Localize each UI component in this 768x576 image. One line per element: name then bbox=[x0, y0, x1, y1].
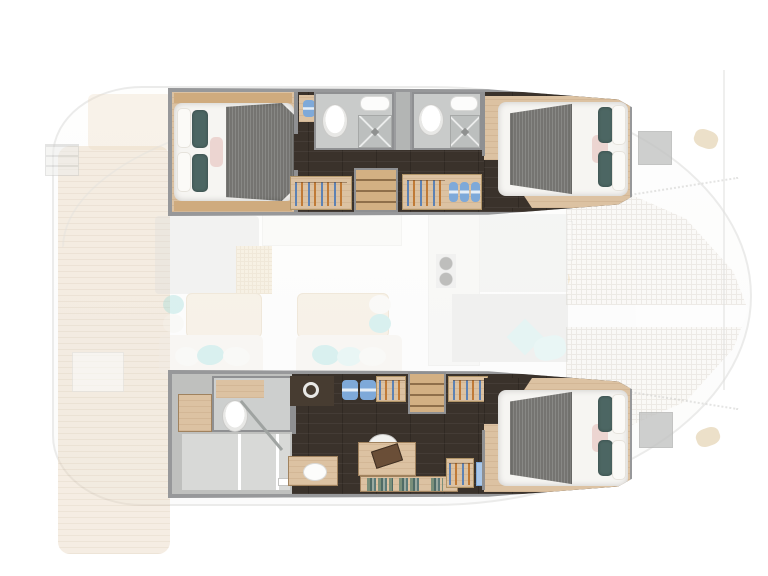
bed-blanket-gray bbox=[510, 390, 572, 486]
aft-cabin-shelf bbox=[174, 201, 292, 211]
blue-towel bbox=[460, 182, 469, 202]
bed-pillow-white bbox=[612, 151, 626, 191]
cabin-bulkhead bbox=[292, 406, 296, 434]
saloon-table-left bbox=[186, 293, 262, 338]
bed-pillow-white bbox=[177, 152, 191, 192]
wardrobe-hangers bbox=[446, 458, 474, 488]
blue-towel bbox=[342, 380, 358, 400]
port-bathroom-forward bbox=[412, 92, 482, 150]
hanger-rail bbox=[453, 380, 485, 400]
bench-pillow-white bbox=[359, 347, 386, 366]
companionway-stairs-port bbox=[354, 168, 398, 212]
cabin-bulkhead bbox=[482, 92, 485, 156]
vanity-shelf bbox=[216, 380, 264, 398]
glass-partition bbox=[238, 434, 241, 490]
hanger-rail bbox=[295, 182, 347, 206]
bed-pillow-white bbox=[177, 108, 191, 148]
companionway-stairs-starboard bbox=[408, 372, 446, 414]
sofa-pillow-teal bbox=[163, 295, 184, 314]
laptop bbox=[371, 443, 403, 469]
saloon-cabinet bbox=[262, 214, 402, 246]
hanger-rail bbox=[379, 380, 405, 400]
wardrobe-hangers bbox=[376, 376, 406, 402]
toilet bbox=[418, 104, 444, 136]
bathroom-divider bbox=[394, 92, 412, 150]
bed-pillow-white bbox=[612, 440, 626, 480]
port-bathroom-aft bbox=[314, 92, 394, 150]
blue-towel bbox=[360, 380, 376, 400]
rattan-table bbox=[236, 246, 272, 294]
towel-cubby bbox=[340, 378, 378, 402]
books bbox=[399, 478, 421, 491]
bed-pillow-teal bbox=[598, 440, 613, 476]
port-hull bbox=[168, 88, 632, 216]
washbasin-counter bbox=[288, 456, 338, 486]
wardrobe-hangers-towels bbox=[402, 174, 482, 210]
bed-blanket-gray bbox=[226, 103, 294, 201]
floor-plan-canvas bbox=[0, 0, 768, 576]
sofa-pillow-teal bbox=[369, 314, 391, 333]
hanger-rail bbox=[449, 463, 473, 485]
shower-tray bbox=[450, 115, 480, 148]
washbasin bbox=[450, 96, 478, 111]
hanger-rail bbox=[407, 180, 445, 206]
washbasin bbox=[303, 463, 327, 481]
wardrobe-hangers bbox=[290, 176, 352, 210]
cabin-bulkhead bbox=[294, 92, 298, 134]
washbasin bbox=[360, 96, 390, 111]
washer-door-icon bbox=[303, 382, 319, 398]
aft-cabin-shelf bbox=[174, 93, 292, 103]
bed-blanket-gray bbox=[510, 102, 572, 196]
shower-tray bbox=[358, 115, 392, 148]
wardrobe-hangers bbox=[448, 376, 488, 402]
bathroom-cabinet bbox=[178, 394, 212, 432]
washing-machine bbox=[290, 376, 334, 406]
foredeck-panel bbox=[480, 214, 568, 292]
bed-pillow-teal bbox=[598, 396, 613, 432]
port-forward-cabin-bed bbox=[498, 102, 628, 196]
starboard-hull bbox=[168, 370, 632, 498]
sofa-pillow-white bbox=[163, 314, 184, 333]
bed-pillow-pink bbox=[210, 137, 223, 167]
bed-pillow-teal bbox=[598, 151, 613, 187]
bed-pillow-teal bbox=[598, 107, 613, 143]
bed-pillow-teal bbox=[192, 154, 208, 192]
bed-pillow-teal bbox=[192, 110, 208, 148]
stove-burners bbox=[436, 254, 456, 288]
toilet-room bbox=[212, 376, 292, 432]
bed-pillow-white bbox=[612, 105, 626, 145]
blue-towel bbox=[449, 182, 458, 202]
toilet bbox=[322, 104, 348, 138]
bookshelf bbox=[360, 476, 458, 492]
books bbox=[367, 478, 393, 491]
starboard-forward-cabin-bed bbox=[498, 390, 628, 486]
bed-pillow-white bbox=[612, 394, 626, 434]
books bbox=[431, 478, 443, 491]
cabin-bulkhead bbox=[482, 430, 485, 490]
port-aft-cabin-bed bbox=[174, 103, 294, 201]
desk bbox=[358, 442, 416, 476]
sofa-pillow-white bbox=[369, 295, 391, 314]
blue-towel bbox=[471, 182, 480, 202]
